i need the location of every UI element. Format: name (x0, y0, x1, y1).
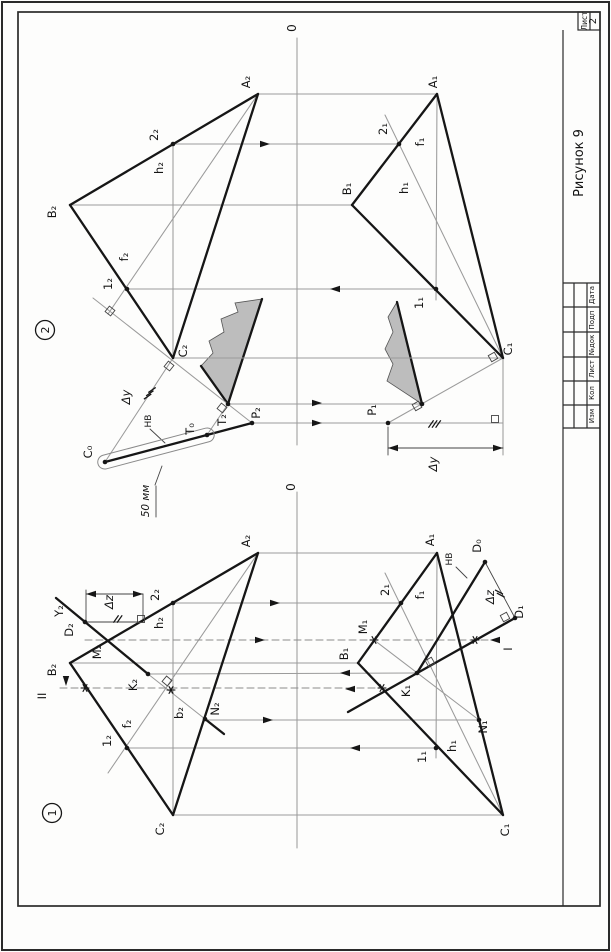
direction-arrow (490, 637, 500, 643)
point-marker (203, 717, 208, 722)
point-label: h₁ (445, 740, 459, 752)
right-angle-mark (488, 352, 498, 362)
edge-line (417, 562, 485, 673)
figure-1-problem: 0A₂B₂C₂2₂h₂ΔzY₂D₂M₂IIK₂f₂b₂N₂1₂A₁D₀НВ2₁f… (35, 483, 526, 848)
point-marker (483, 560, 488, 565)
point-marker (171, 142, 176, 147)
point-label: h₂ (152, 162, 166, 174)
point-label: M₁ (356, 620, 370, 635)
direction-arrow (493, 445, 503, 451)
point-label: 2₂ (147, 129, 161, 141)
figure-2-problem: 0A₂B₂C₂2₂h₂f₂1₂ΔyНВT₀T₂P₂C₀A₁B₁C₁2₁f₁h₁1… (36, 24, 516, 517)
equality-tick (497, 593, 505, 597)
point-label: A₂ (239, 535, 253, 547)
point-label: T₀ (183, 423, 197, 436)
edge-line (358, 663, 503, 815)
sheet-number: 2 (588, 18, 599, 24)
point-label: f₁ (413, 591, 427, 600)
point-marker (205, 433, 210, 438)
stamp-col-label: Изм (588, 409, 596, 423)
point-label: Δy (426, 456, 440, 472)
point-marker (434, 746, 439, 751)
construction-line (108, 94, 258, 314)
point-label: C₁ (498, 824, 512, 837)
direction-arrow (312, 420, 322, 426)
construction-line (374, 640, 479, 720)
dimension-line (155, 466, 162, 485)
title-block-text: Рисунок 9 Лист 2 Дата Подп №док Лист Кол… (572, 11, 599, 423)
construction-line (148, 673, 417, 674)
direction-arrow (350, 745, 360, 751)
construction-line (436, 553, 437, 758)
point-label: f₂ (117, 253, 131, 262)
edge-line (70, 205, 173, 358)
point-label: D₂ (62, 623, 76, 636)
edge-line (70, 94, 258, 205)
point-label: B₁ (340, 183, 354, 196)
point-label: 1₂ (100, 735, 114, 747)
point-marker (397, 142, 402, 147)
direction-arrow (63, 676, 69, 686)
direction-arrow (312, 400, 322, 406)
plane-fragment (201, 299, 262, 404)
point-label: 2₁ (378, 584, 392, 596)
direction-arrow (263, 717, 273, 723)
edge-line (205, 719, 224, 734)
edge-line (352, 205, 503, 358)
stamp-col-label: Подп (588, 311, 596, 330)
point-label: A₁ (423, 534, 437, 546)
point-label: 0 (284, 483, 298, 491)
point-marker (250, 421, 255, 426)
point-label: D₀ (470, 539, 484, 553)
point-marker (399, 601, 404, 606)
direction-arrow (340, 670, 350, 676)
drawing-canvas: Рисунок 9 Лист 2 Дата Подп №док Лист Кол… (0, 0, 611, 952)
stamp-col-label: №док (588, 335, 596, 356)
direction-arrow (255, 637, 265, 643)
point-label: B₁ (337, 648, 351, 661)
stamp-col-label: Лист (588, 360, 596, 378)
point-label: K₂ (126, 679, 140, 691)
point-marker (146, 672, 151, 677)
point-label: M₂ (90, 645, 104, 660)
point-label: A₂ (239, 76, 253, 88)
point-label: D₁ (512, 605, 526, 618)
point-label: B₂ (45, 664, 59, 677)
point-label: C₁ (501, 343, 515, 356)
point-label: C₀ (81, 445, 95, 458)
edge-line (358, 553, 437, 663)
point-label: 1₁ (412, 297, 426, 309)
point-label: P₁ (365, 404, 379, 416)
direction-arrow (270, 600, 280, 606)
point-label: b₂ (172, 707, 186, 719)
right-angle-mark (492, 416, 499, 423)
point-marker (415, 671, 420, 676)
direction-arrow (260, 141, 270, 147)
point-label: 0 (285, 24, 299, 32)
point-label: f₁ (413, 138, 427, 147)
point-label: НВ (445, 553, 455, 566)
direction-arrow (388, 445, 398, 451)
dimension-line (485, 562, 515, 618)
point-marker (171, 601, 176, 606)
point-label: h₁ (397, 182, 411, 194)
stamp-col-label: Дата (588, 286, 596, 304)
point-label: C₂ (176, 345, 190, 358)
point-label: h₂ (152, 617, 166, 629)
point-label: P₂ (249, 407, 263, 419)
stamp-col-label: Кол (588, 386, 596, 400)
point-label: II (35, 693, 49, 700)
edge-line (70, 663, 173, 815)
point-label: f₂ (120, 720, 134, 729)
problem-number: 2 (39, 327, 52, 334)
point-label: K₁ (399, 685, 413, 697)
point-label: I (501, 647, 515, 650)
direction-arrow (133, 591, 143, 597)
point-label: Δy (119, 389, 133, 405)
edge-line (437, 94, 503, 358)
point-marker (83, 620, 88, 625)
problem-number: 1 (46, 810, 59, 817)
point-label: 1₂ (101, 278, 115, 290)
point-marker (434, 287, 439, 292)
point-label: 2₂ (148, 589, 162, 601)
construction-line (436, 94, 437, 300)
point-label: Δz (102, 594, 116, 610)
direction-arrow (86, 591, 96, 597)
direction-arrow (330, 286, 340, 292)
edge-line (352, 94, 437, 205)
right-angle-mark (500, 612, 509, 621)
point-label: 2₁ (376, 123, 390, 135)
point-label: A₁ (426, 76, 440, 88)
point-label: Y₂ (52, 605, 66, 618)
point-label: 1₁ (415, 751, 429, 763)
point-label: C₂ (153, 823, 167, 836)
point-marker (386, 421, 391, 426)
point-label: N₂ (208, 702, 222, 715)
point-label: N₁ (476, 720, 490, 733)
point-marker (125, 746, 130, 751)
point-label: T₂ (215, 414, 229, 427)
point-marker (125, 287, 130, 292)
point-label: Δz (483, 589, 497, 605)
drawing-sheet: Рисунок 9 Лист 2 Дата Подп №док Лист Кол… (0, 0, 611, 952)
direction-arrow (345, 686, 355, 692)
plane-fragment (385, 302, 422, 404)
edge-line (173, 553, 258, 815)
point-marker (103, 460, 108, 465)
point-label: 50 мм (140, 485, 152, 518)
figure-caption: Рисунок 9 (572, 129, 587, 197)
drawing-frame (18, 12, 600, 906)
point-label: НВ (144, 415, 154, 428)
point-label: B₂ (45, 206, 59, 219)
point-marker (420, 402, 425, 407)
dimension-line (456, 567, 467, 578)
point-marker (226, 402, 231, 407)
